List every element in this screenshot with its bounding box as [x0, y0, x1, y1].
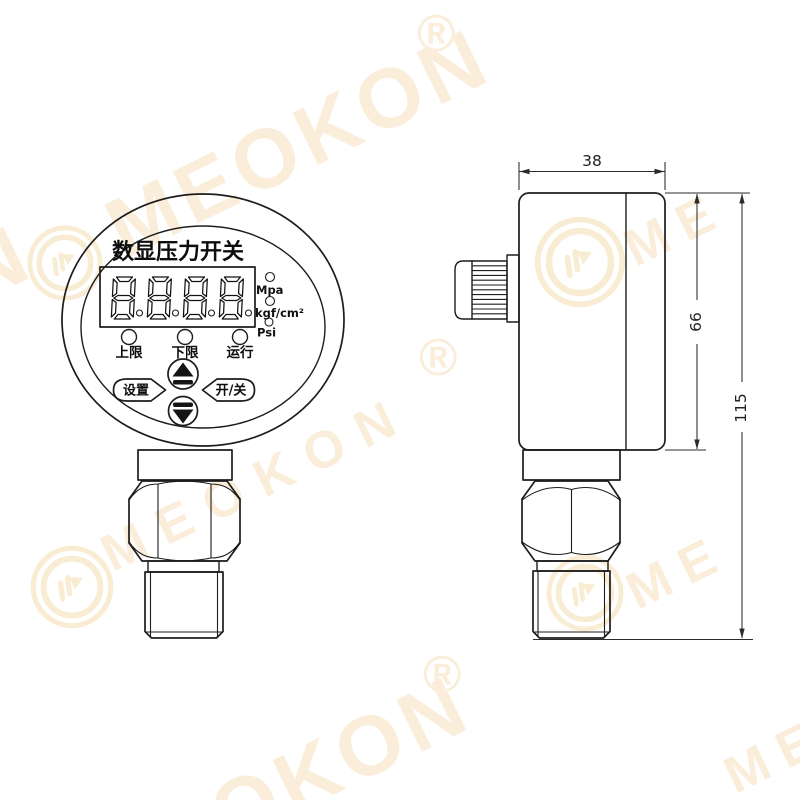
decimal-point [173, 310, 179, 316]
arrowhead [520, 169, 530, 174]
down-arrow-icon [173, 410, 194, 424]
dimension-total-height-value: 115 [732, 393, 750, 423]
drawing-svg: 数显压力开关 Mpa kgf/cm² Psi [0, 0, 800, 800]
gauge-title: 数显压力开关 [112, 239, 244, 265]
side-view [455, 193, 665, 638]
unit-led-mpa [266, 273, 275, 282]
arrowhead [655, 169, 665, 174]
cable-gland [455, 255, 519, 322]
lcd-display [100, 267, 255, 327]
gauge-outer-bezel [62, 194, 344, 446]
status-indicator-group: 上限 下限 运行 [116, 330, 254, 362]
unit-label-psi: Psi [257, 326, 276, 340]
collar [148, 561, 219, 572]
decimal-point [246, 310, 252, 316]
status-label-running: 运行 [227, 344, 254, 361]
unit-label-mpa: Mpa [256, 283, 283, 297]
dimension-case-depth-value: 66 [687, 312, 705, 332]
down-button-bar-icon [173, 403, 193, 408]
arrowhead [694, 440, 699, 450]
technical-drawing-canvas: MEOKON ON ® ME MEOKON ® OKON ® ME ME [0, 0, 800, 800]
seven-segment-digit [111, 277, 135, 319]
hex-nut [129, 481, 240, 561]
threaded-stud [145, 572, 223, 638]
decimal-point [137, 310, 143, 316]
dimension-annotations: 38 66 115 [519, 152, 753, 640]
case-body [519, 193, 665, 450]
up-arrow-icon [173, 363, 194, 377]
status-label-upper-limit: 上限 [116, 345, 143, 361]
power-button-label: 开/关 [216, 383, 247, 399]
arrowhead [739, 194, 744, 204]
threaded-stud [533, 571, 610, 638]
front-fitting [129, 450, 240, 638]
up-button-bar-icon [173, 380, 193, 385]
neck [138, 450, 232, 480]
seven-segment-display [111, 277, 251, 319]
status-led-upper-limit [122, 330, 137, 345]
status-led-lower-limit [178, 330, 193, 345]
set-button-label: 设置 [123, 384, 149, 399]
arrowhead [739, 629, 744, 639]
status-led-running [233, 330, 248, 345]
unit-led-kgfcm2 [266, 297, 275, 306]
front-view-gauge: 数显压力开关 Mpa kgf/cm² Psi [62, 194, 344, 638]
seven-segment-digit [219, 277, 243, 319]
side-fitting [522, 450, 620, 638]
arrowhead [694, 194, 699, 204]
button-group: 设置 开/关 [114, 359, 255, 426]
neck [523, 450, 620, 480]
seven-segment-digit [147, 277, 171, 319]
collar [537, 561, 608, 571]
seven-segment-digit [183, 277, 207, 319]
dimension-width-value: 38 [582, 152, 602, 170]
unit-indicator-group: Mpa kgf/cm² Psi [255, 273, 304, 340]
unit-label-kgfcm2: kgf/cm² [255, 306, 304, 320]
decimal-point [209, 310, 215, 316]
